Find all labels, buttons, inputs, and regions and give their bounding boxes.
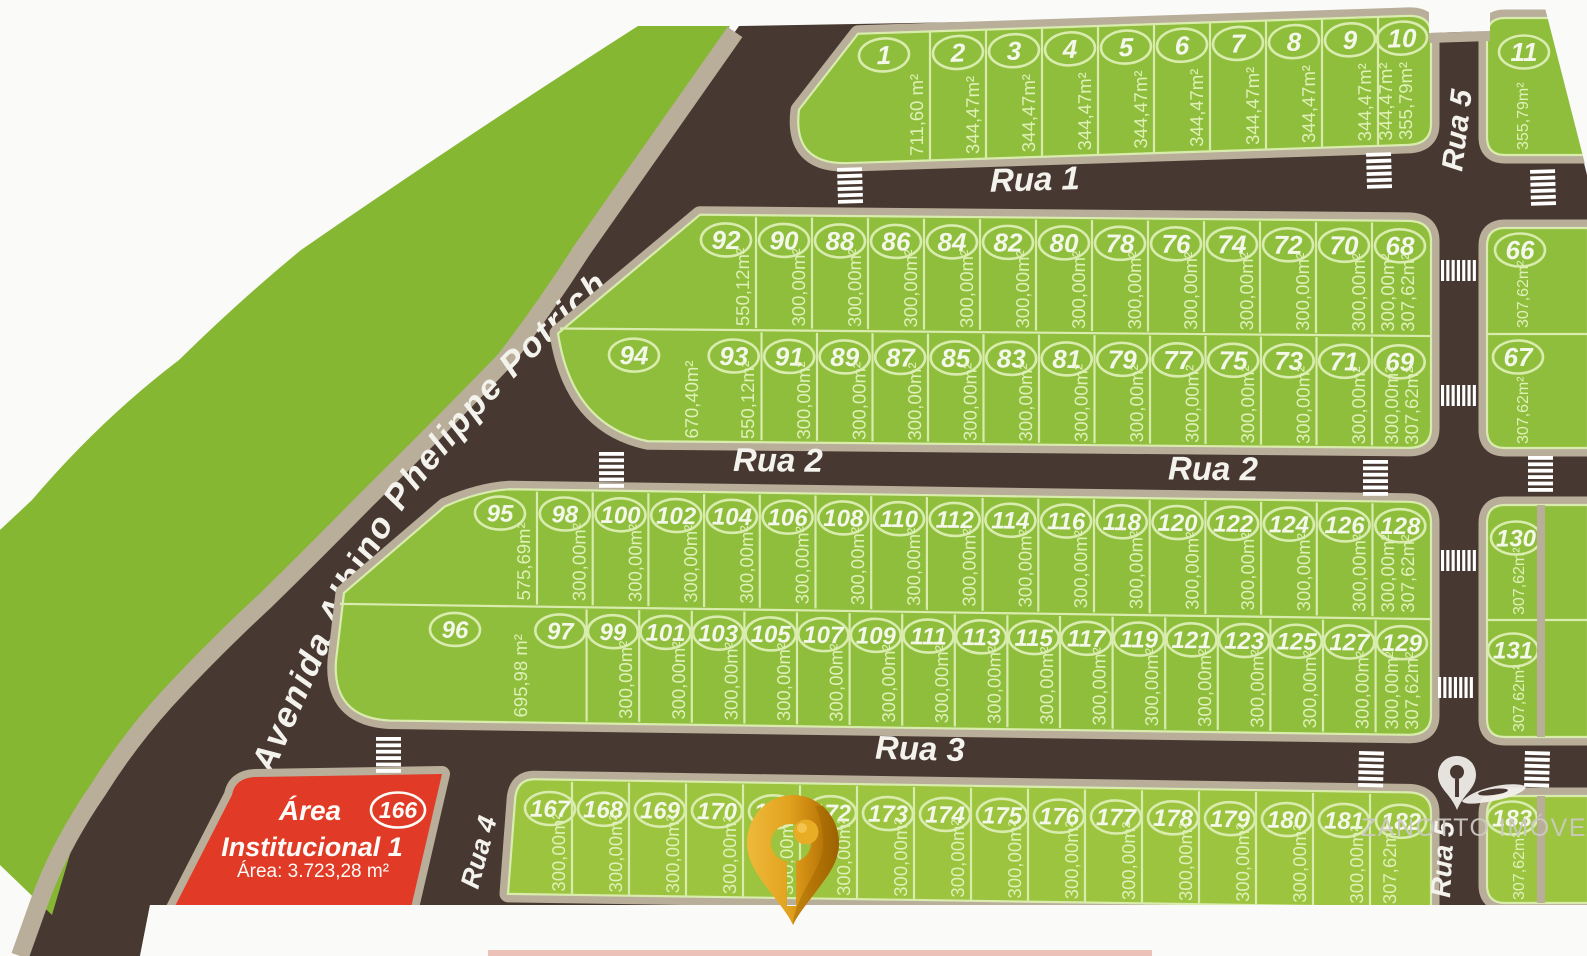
svg-text:95: 95	[487, 500, 514, 527]
svg-text:344,47m²: 344,47m²	[1074, 72, 1095, 151]
svg-text:Área: Área	[278, 795, 341, 826]
svg-text:344,47m²: 344,47m²	[1186, 68, 1207, 147]
svg-text:300,00m²: 300,00m²	[792, 526, 813, 604]
svg-text:131: 131	[1493, 637, 1533, 664]
svg-text:307,62m²: 307,62m²	[1515, 260, 1532, 328]
svg-text:300,00m²: 300,00m²	[983, 646, 1004, 724]
svg-text:300,00m²: 300,00m²	[1061, 821, 1082, 899]
svg-text:300,00m²: 300,00m²	[1175, 823, 1196, 901]
svg-text:166: 166	[379, 797, 418, 823]
svg-text:300,00m²: 300,00m²	[1194, 649, 1215, 727]
svg-text:300,00m²: 300,00m²	[1141, 648, 1162, 726]
svg-text:300,00m²: 300,00m²	[959, 528, 980, 606]
svg-text:11: 11	[1511, 37, 1538, 67]
svg-text:355,79m²: 355,79m²	[1515, 82, 1532, 150]
svg-text:300,00m²: 300,00m²	[1180, 252, 1201, 330]
svg-text:ZANOTTO IMÓVEIS: ZANOTTO IMÓVEIS	[1361, 813, 1587, 842]
svg-text:300,00m²: 300,00m²	[680, 524, 701, 602]
svg-text:8: 8	[1287, 26, 1302, 56]
svg-text:300,00m²: 300,00m²	[931, 645, 952, 723]
svg-text:711,60 m²: 711,60 m²	[906, 74, 927, 157]
svg-text:300,00m²: 300,00m²	[1004, 820, 1025, 898]
svg-text:300,00m²: 300,00m²	[1237, 532, 1258, 610]
svg-text:300,00m²: 300,00m²	[1124, 251, 1145, 329]
svg-text:300,00m²: 300,00m²	[1012, 250, 1033, 328]
svg-text:300,00m²: 300,00m²	[1068, 251, 1089, 329]
svg-text:4: 4	[1062, 34, 1078, 65]
svg-text:307,62m²: 307,62m²	[1511, 547, 1528, 615]
svg-text:300,00m²: 300,00m²	[1289, 824, 1310, 902]
svg-text:307,62m²: 307,62m²	[1401, 652, 1422, 730]
svg-text:7: 7	[1231, 28, 1247, 59]
svg-text:695,98 m²: 695,98 m²	[510, 634, 531, 718]
svg-text:300,00m²: 300,00m²	[900, 249, 921, 327]
svg-text:344,47m²: 344,47m²	[962, 76, 983, 155]
svg-text:300,00m²: 300,00m²	[1292, 253, 1313, 331]
svg-text:300,00m²: 300,00m²	[844, 249, 865, 327]
svg-text:10: 10	[1388, 23, 1417, 54]
svg-text:Rua 3: Rua 3	[875, 729, 965, 768]
svg-text:300,00m²: 300,00m²	[605, 814, 626, 892]
svg-text:300,00m²: 300,00m²	[569, 523, 590, 601]
svg-text:300,00m²: 300,00m²	[904, 362, 925, 440]
svg-text:300,00m²: 300,00m²	[956, 250, 977, 328]
svg-text:94: 94	[620, 340, 649, 370]
svg-text:300,00m²: 300,00m²	[548, 813, 569, 891]
svg-text:300,00m²: 300,00m²	[960, 363, 981, 441]
svg-text:300,00m²: 300,00m²	[736, 525, 757, 603]
svg-text:Rua 1: Rua 1	[990, 159, 1080, 199]
svg-text:300,00m²: 300,00m²	[903, 528, 924, 606]
svg-text:344,47m²: 344,47m²	[1298, 65, 1319, 144]
svg-text:300,00m²: 300,00m²	[1036, 646, 1057, 724]
svg-text:300,00m²: 300,00m²	[788, 248, 809, 326]
svg-text:300,00m²: 300,00m²	[1015, 363, 1036, 441]
svg-text:300,00m²: 300,00m²	[1246, 649, 1267, 727]
svg-text:344,47m²: 344,47m²	[1018, 74, 1039, 153]
svg-text:300,00m²: 300,00m²	[719, 816, 740, 894]
svg-text:300,00m²: 300,00m²	[1299, 650, 1320, 728]
svg-text:300,00m²: 300,00m²	[1014, 529, 1035, 607]
svg-text:300,00m²: 300,00m²	[1089, 647, 1110, 725]
svg-text:300,00m²: 300,00m²	[615, 641, 636, 719]
svg-text:9: 9	[1343, 25, 1358, 55]
svg-text:300,00m²: 300,00m²	[890, 818, 911, 896]
svg-text:575,69m²: 575,69m²	[513, 522, 534, 600]
svg-text:300,00m²: 300,00m²	[1232, 824, 1253, 902]
svg-text:300,00m²: 300,00m²	[773, 643, 794, 721]
svg-text:300,00m²: 300,00m²	[1381, 651, 1402, 729]
svg-text:5: 5	[1119, 32, 1134, 62]
svg-text:300,00m²: 300,00m²	[1377, 253, 1398, 331]
svg-text:300,00m²: 300,00m²	[847, 527, 868, 605]
svg-text:300,00m²: 300,00m²	[1348, 366, 1369, 444]
svg-text:670,40m²: 670,40m²	[681, 360, 702, 438]
svg-text:300,00m²: 300,00m²	[1070, 530, 1091, 608]
svg-text:300,00m²: 300,00m²	[1352, 651, 1373, 729]
svg-text:300,00m²: 300,00m²	[878, 644, 899, 722]
svg-text:300,00m²: 300,00m²	[1377, 534, 1398, 612]
svg-text:300,00m²: 300,00m²	[826, 644, 847, 722]
svg-text:344,47m²: 344,47m²	[1242, 66, 1263, 145]
svg-text:Rua 2: Rua 2	[1168, 450, 1259, 488]
svg-text:300,00m²: 300,00m²	[1236, 252, 1257, 330]
svg-text:307,62m²: 307,62m²	[1397, 535, 1418, 613]
svg-text:300,00m²: 300,00m²	[720, 642, 741, 720]
svg-text:300,00m²: 300,00m²	[1381, 366, 1402, 444]
svg-text:300,00m²: 300,00m²	[1126, 364, 1147, 442]
svg-text:355,79m²: 355,79m²	[1395, 62, 1416, 141]
svg-text:300,00m²: 300,00m²	[1293, 533, 1314, 611]
svg-text:300,00m²: 300,00m²	[947, 819, 968, 897]
svg-text:97: 97	[547, 618, 575, 645]
svg-text:300,00m²: 300,00m²	[1182, 365, 1203, 443]
svg-text:Institucional 1: Institucional 1	[221, 832, 403, 862]
svg-text:300,00m²: 300,00m²	[793, 361, 814, 439]
svg-text:550,12m²: 550,12m²	[737, 361, 758, 439]
svg-text:307,62m²: 307,62m²	[1511, 664, 1528, 732]
svg-text:300,00m²: 300,00m²	[1118, 822, 1139, 900]
svg-text:300,00m²: 300,00m²	[1349, 534, 1370, 612]
svg-text:3: 3	[1007, 36, 1022, 66]
svg-text:Rua 2: Rua 2	[733, 441, 824, 479]
svg-text:300,00m²: 300,00m²	[1126, 531, 1147, 609]
svg-text:307,62m²: 307,62m²	[1397, 254, 1418, 332]
svg-text:1: 1	[877, 40, 891, 70]
svg-text:300,00m²: 300,00m²	[624, 524, 645, 602]
svg-text:344,47m²: 344,47m²	[1354, 63, 1375, 142]
svg-text:300,00m²: 300,00m²	[1237, 365, 1258, 443]
svg-text:Área: 3.723,28 m²: Área: 3.723,28 m²	[237, 861, 389, 882]
svg-text:550,12m²: 550,12m²	[732, 248, 753, 326]
svg-text:67: 67	[1504, 342, 1534, 372]
svg-text:344,47m²: 344,47m²	[1375, 62, 1396, 141]
svg-text:300,00m²: 300,00m²	[1181, 531, 1202, 609]
svg-text:6: 6	[1175, 30, 1190, 60]
svg-text:300,00m²: 300,00m²	[662, 815, 683, 893]
svg-text:300,00m²: 300,00m²	[849, 362, 870, 440]
svg-text:300,00m²: 300,00m²	[1348, 253, 1369, 331]
svg-text:307,62m²: 307,62m²	[1401, 367, 1422, 445]
svg-text:96: 96	[442, 617, 469, 644]
svg-text:344,47m²: 344,47m²	[1130, 70, 1151, 149]
svg-text:2: 2	[950, 37, 966, 68]
svg-text:300,00m²: 300,00m²	[668, 641, 689, 719]
svg-text:300,00m²: 300,00m²	[1071, 364, 1092, 442]
svg-text:300,00m²: 300,00m²	[1293, 366, 1314, 444]
svg-text:307,62m²: 307,62m²	[1515, 376, 1532, 444]
